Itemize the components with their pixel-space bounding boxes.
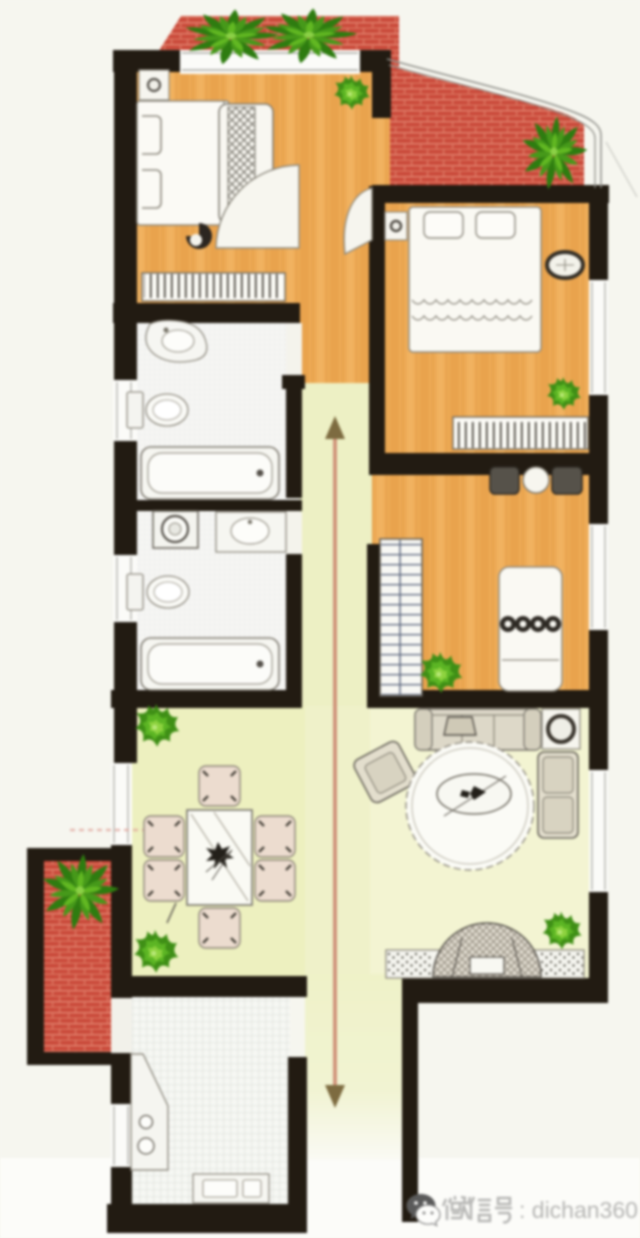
svg-text:: dichan360: : dichan360: [519, 1197, 638, 1223]
